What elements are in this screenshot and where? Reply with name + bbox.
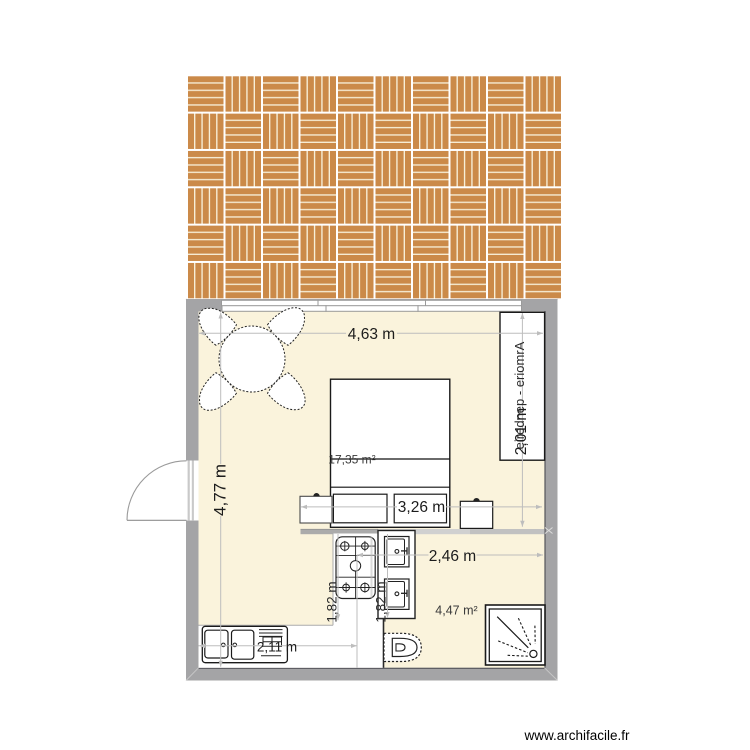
svg-text:4,47 m²: 4,47 m² [435,604,477,618]
svg-text:17,35 m²: 17,35 m² [328,452,375,466]
svg-text:3,26 m: 3,26 m [398,499,445,516]
svg-text:2,46 m: 2,46 m [429,548,476,565]
svg-text:1,82 m: 1,82 m [325,581,340,622]
svg-text:4,63 m: 4,63 m [348,326,395,343]
svg-text:2,01 m: 2,01 m [513,408,530,455]
svg-text:www.archifacile.fr: www.archifacile.fr [524,728,631,743]
svg-text:1,82 m: 1,82 m [374,581,389,622]
svg-text:4,77 m: 4,77 m [211,464,230,516]
svg-text:2,11 m: 2,11 m [257,640,297,655]
